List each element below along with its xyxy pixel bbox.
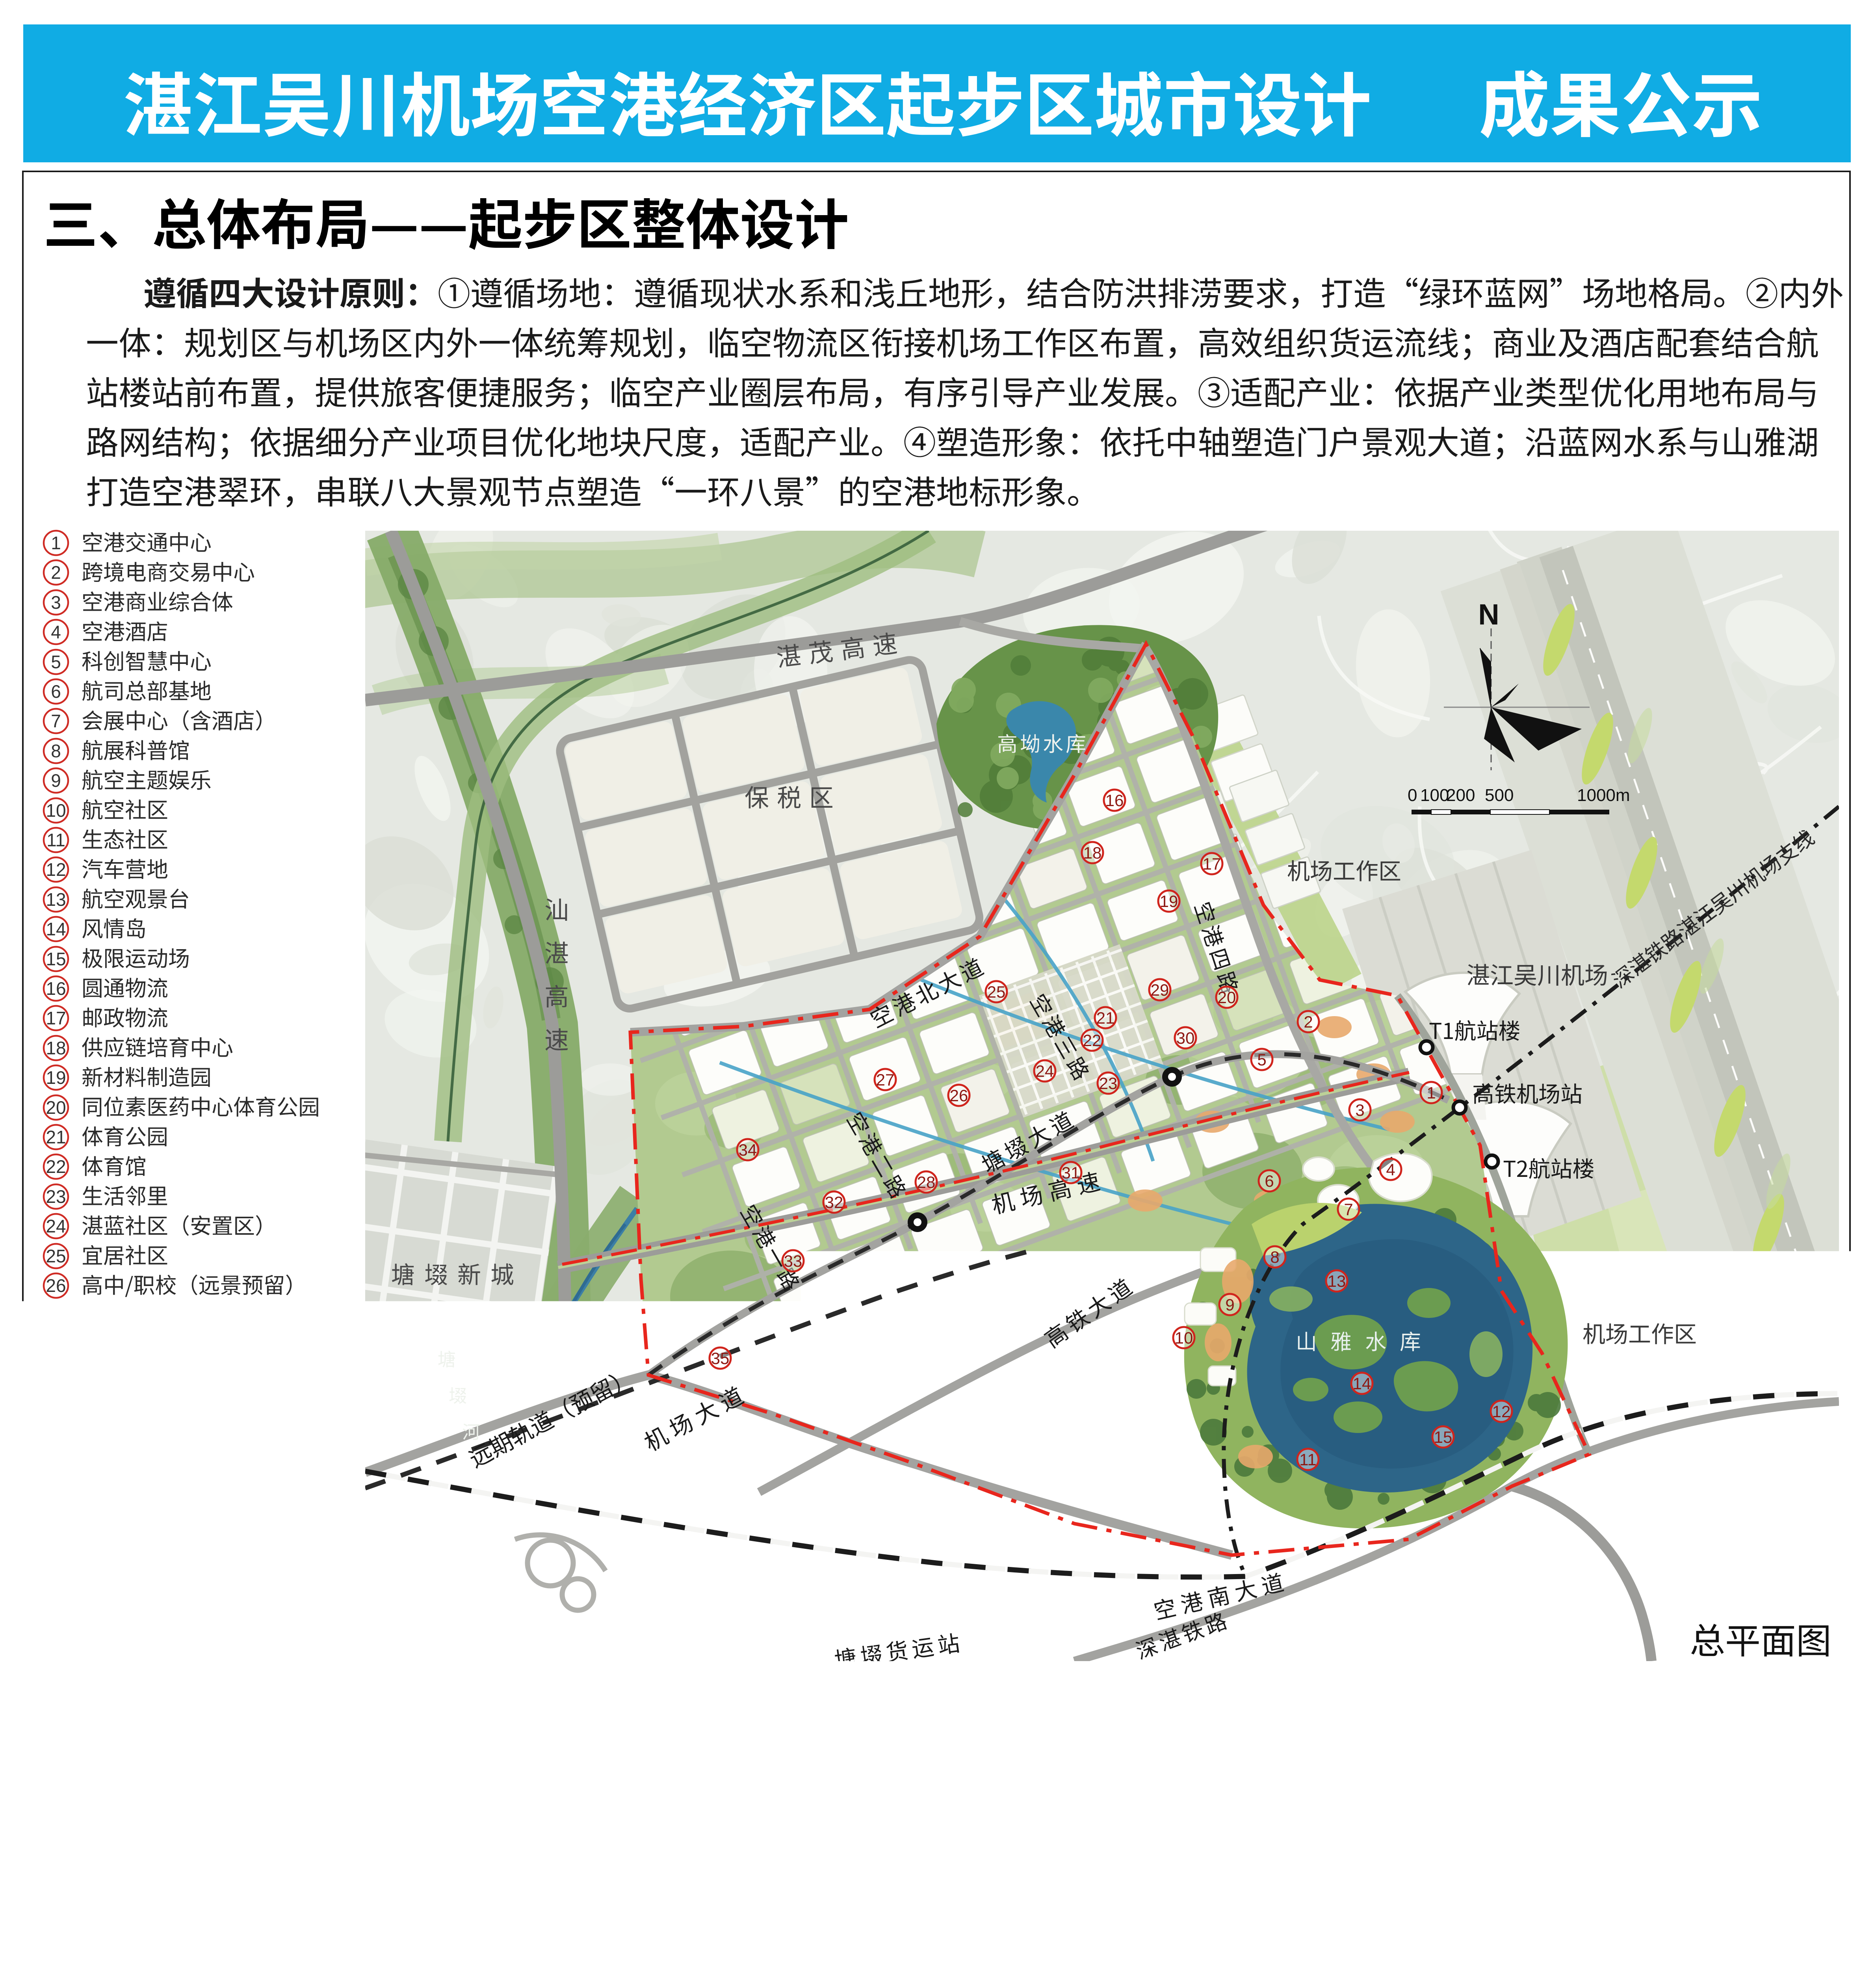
svg-text:32: 32 xyxy=(825,1193,843,1212)
svg-text:34: 34 xyxy=(46,1513,66,1533)
svg-text:15: 15 xyxy=(1434,1428,1453,1446)
svg-text:500: 500 xyxy=(1485,786,1514,805)
svg-text:28: 28 xyxy=(46,1335,66,1355)
svg-text:7: 7 xyxy=(51,711,61,731)
svg-text:19: 19 xyxy=(46,1067,66,1088)
svg-text:11: 11 xyxy=(46,830,65,850)
svg-text:28: 28 xyxy=(917,1173,936,1191)
svg-text:0: 0 xyxy=(1408,786,1417,805)
svg-text:5: 5 xyxy=(51,652,61,672)
svg-text:17: 17 xyxy=(1203,855,1221,873)
svg-text:12: 12 xyxy=(1492,1402,1511,1421)
svg-text:18: 18 xyxy=(1083,844,1102,862)
svg-text:23: 23 xyxy=(46,1186,66,1207)
svg-text:27: 27 xyxy=(46,1305,66,1325)
svg-text:4: 4 xyxy=(1386,1160,1395,1179)
svg-text:4: 4 xyxy=(51,622,61,642)
svg-text:10: 10 xyxy=(1175,1329,1193,1347)
svg-text:13: 13 xyxy=(1328,1272,1346,1290)
svg-text:2: 2 xyxy=(51,562,61,583)
svg-text:34: 34 xyxy=(739,1141,757,1159)
svg-text:8: 8 xyxy=(1270,1248,1279,1266)
svg-text:24: 24 xyxy=(46,1216,66,1236)
svg-text:7: 7 xyxy=(1344,1200,1353,1219)
svg-text:11: 11 xyxy=(1299,1450,1317,1469)
svg-text:100: 100 xyxy=(1420,786,1449,805)
svg-text:14: 14 xyxy=(1353,1374,1371,1393)
svg-text:16: 16 xyxy=(46,978,66,999)
svg-text:3: 3 xyxy=(51,592,61,613)
svg-text:1: 1 xyxy=(51,533,61,553)
svg-text:26: 26 xyxy=(950,1086,968,1105)
svg-text:29: 29 xyxy=(1151,981,1169,999)
svg-text:18: 18 xyxy=(46,1038,66,1058)
svg-text:10: 10 xyxy=(46,800,66,821)
svg-text:17: 17 xyxy=(46,1008,66,1028)
svg-text:9: 9 xyxy=(1225,1295,1234,1314)
svg-text:9: 9 xyxy=(51,770,61,791)
svg-text:20: 20 xyxy=(1218,988,1236,1007)
svg-text:20: 20 xyxy=(46,1097,66,1118)
svg-text:16: 16 xyxy=(1105,791,1124,810)
svg-text:21: 21 xyxy=(46,1127,66,1147)
svg-text:6: 6 xyxy=(1265,1172,1274,1190)
svg-text:25: 25 xyxy=(987,983,1006,1001)
svg-text:2: 2 xyxy=(1304,1013,1313,1031)
svg-text:8: 8 xyxy=(51,741,61,761)
svg-text:33: 33 xyxy=(46,1483,66,1504)
svg-text:24: 24 xyxy=(1036,1062,1054,1080)
svg-text:3: 3 xyxy=(1355,1101,1364,1119)
svg-text:25: 25 xyxy=(46,1246,66,1266)
svg-text:32: 32 xyxy=(46,1453,66,1474)
svg-text:15: 15 xyxy=(46,949,66,969)
svg-text:35: 35 xyxy=(46,1543,66,1563)
svg-text:N: N xyxy=(1478,598,1499,631)
svg-text:30: 30 xyxy=(1176,1029,1195,1047)
svg-text:5: 5 xyxy=(1257,1050,1266,1069)
svg-text:29: 29 xyxy=(46,1364,66,1385)
svg-text:35: 35 xyxy=(711,1349,730,1368)
svg-text:22: 22 xyxy=(1083,1031,1101,1050)
svg-text:1: 1 xyxy=(1427,1083,1436,1102)
svg-text:26: 26 xyxy=(46,1275,66,1296)
svg-text:1000m: 1000m xyxy=(1577,786,1630,805)
svg-text:19: 19 xyxy=(1160,892,1178,911)
svg-text:200: 200 xyxy=(1446,786,1475,805)
svg-text:31: 31 xyxy=(1062,1163,1080,1182)
svg-text:33: 33 xyxy=(784,1252,802,1270)
svg-text:22: 22 xyxy=(46,1156,66,1177)
svg-text:23: 23 xyxy=(1099,1074,1118,1093)
svg-text:13: 13 xyxy=(46,889,66,910)
svg-text:14: 14 xyxy=(46,919,66,939)
svg-text:31: 31 xyxy=(46,1424,66,1444)
svg-text:27: 27 xyxy=(876,1070,895,1089)
svg-text:6: 6 xyxy=(51,681,61,702)
svg-text:30: 30 xyxy=(46,1394,66,1415)
svg-text:21: 21 xyxy=(1096,1009,1115,1027)
svg-text:12: 12 xyxy=(46,859,66,880)
